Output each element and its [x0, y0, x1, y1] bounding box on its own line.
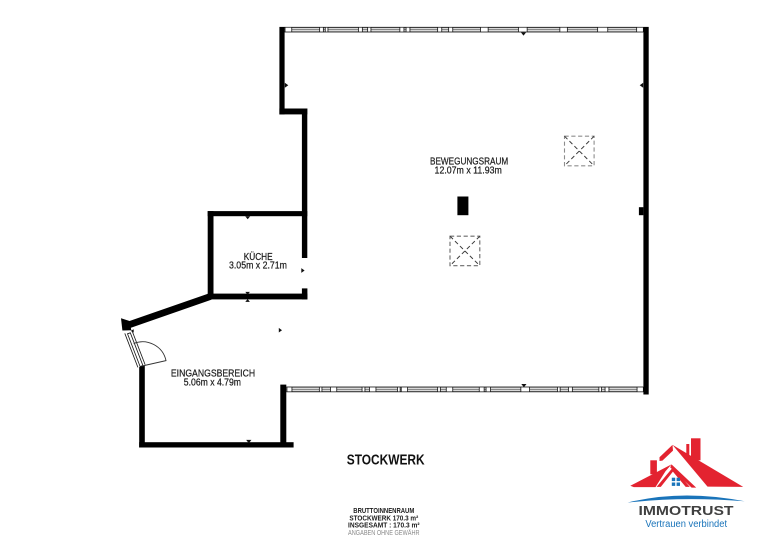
svg-text:STOCKWERK: STOCKWERK: [347, 452, 425, 469]
svg-text:3.05m x 2.71m: 3.05m x 2.71m: [229, 261, 287, 272]
svg-text:Vertrauen verbindet: Vertrauen verbindet: [645, 519, 727, 530]
svg-text:ANGABEN OHNE GEWÄHR: ANGABEN OHNE GEWÄHR: [348, 528, 420, 537]
svg-text:5.06m x 4.79m: 5.06m x 4.79m: [184, 378, 241, 389]
svg-text:12.07m x 11.93m: 12.07m x 11.93m: [435, 166, 502, 177]
svg-text:IMMOTRUST: IMMOTRUST: [639, 503, 734, 518]
